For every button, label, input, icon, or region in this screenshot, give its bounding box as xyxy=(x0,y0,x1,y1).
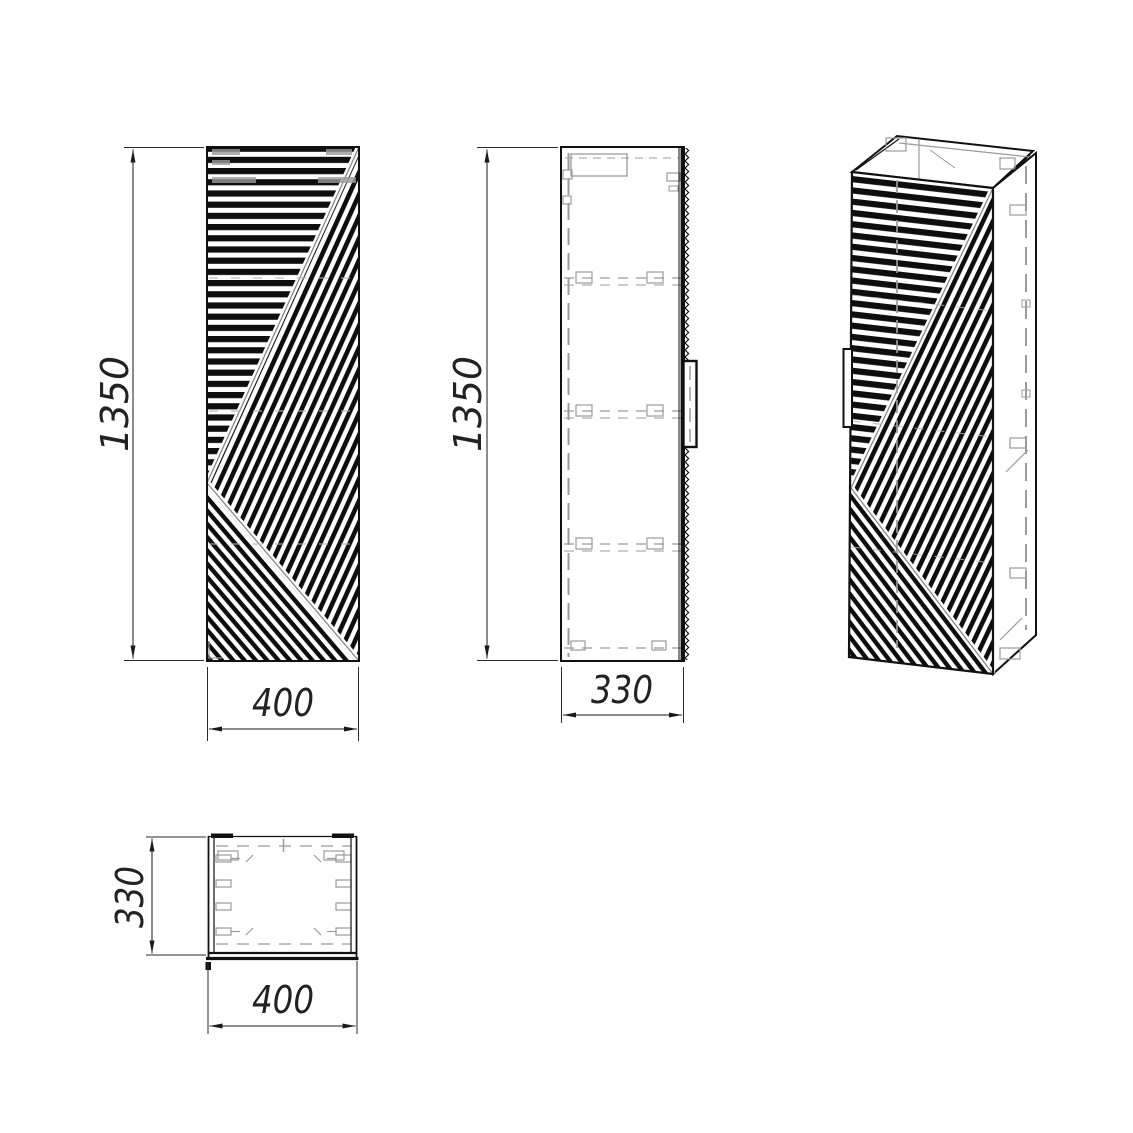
drawing-sheet: 1350 400 1350 330 330 xyxy=(0,0,1133,1133)
top-depth-dimension: 330 xyxy=(108,837,206,955)
perspective-front-face xyxy=(844,172,994,674)
side-view xyxy=(561,147,697,661)
side-depth-label: 330 xyxy=(591,668,653,712)
side-panel xyxy=(561,147,684,661)
top-view-body xyxy=(208,836,357,958)
side-height-dimension: 1350 xyxy=(446,148,558,661)
top-depth-label: 330 xyxy=(108,866,152,928)
top-view xyxy=(206,834,359,971)
side-depth-dimension: 330 xyxy=(562,667,684,723)
side-height-label: 1350 xyxy=(446,356,490,452)
top-width-label: 400 xyxy=(252,978,314,1022)
front-width-dimension: 400 xyxy=(208,667,359,741)
front-height-dimension: 1350 xyxy=(93,148,204,661)
perspective-handle xyxy=(844,349,853,427)
cabinet-technical-drawing: 1350 400 1350 330 330 xyxy=(0,0,1133,1133)
side-handle xyxy=(684,361,697,447)
front-height-label: 1350 xyxy=(93,356,137,452)
front-width-label: 400 xyxy=(252,681,314,725)
front-view xyxy=(207,147,359,661)
top-width-dimension: 400 xyxy=(208,961,357,1034)
perspective-right-panel xyxy=(993,153,1036,674)
perspective-view xyxy=(844,136,1037,674)
